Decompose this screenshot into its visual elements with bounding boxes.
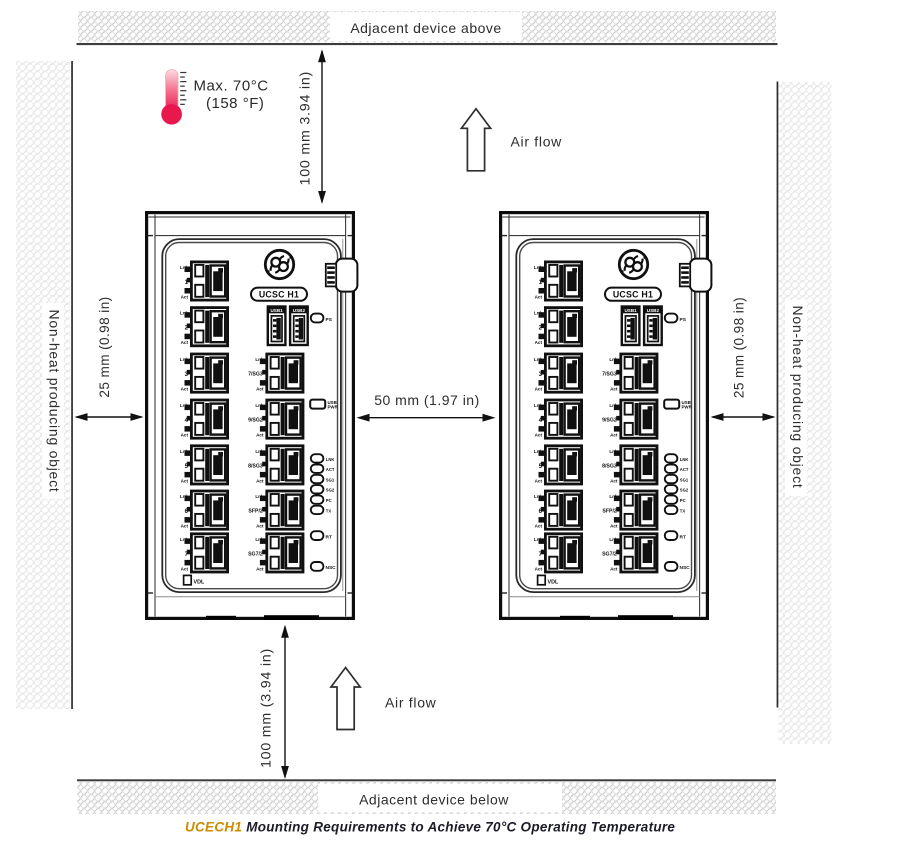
- svg-text:Non-heat producing object: Non-heat producing object: [790, 306, 806, 489]
- svg-text:Air flow: Air flow: [385, 695, 437, 711]
- svg-text:50 mm (1.97 in): 50 mm (1.97 in): [374, 392, 480, 408]
- svg-text:25 mm (0.98 in): 25 mm (0.98 in): [732, 297, 747, 398]
- svg-text:Adjacent device above: Adjacent device above: [350, 20, 501, 36]
- svg-text:25 mm (0.98 in): 25 mm (0.98 in): [97, 296, 112, 397]
- svg-text:Non-heat producing object: Non-heat producing object: [47, 310, 63, 493]
- svg-text:Air flow: Air flow: [511, 134, 563, 150]
- svg-text:100 mm (3.94 in): 100 mm (3.94 in): [259, 648, 275, 768]
- svg-text:Adjacent device below: Adjacent device below: [359, 792, 509, 808]
- svg-text:Max. 70°C: Max. 70°C: [194, 78, 269, 95]
- svg-text:100 mm 3.94 in): 100 mm 3.94 in): [298, 71, 314, 186]
- svg-text:UCECH1 Mounting Requirements t: UCECH1 Mounting Requirements to Achieve …: [185, 820, 675, 835]
- svg-text:(158 °F): (158 °F): [206, 95, 264, 112]
